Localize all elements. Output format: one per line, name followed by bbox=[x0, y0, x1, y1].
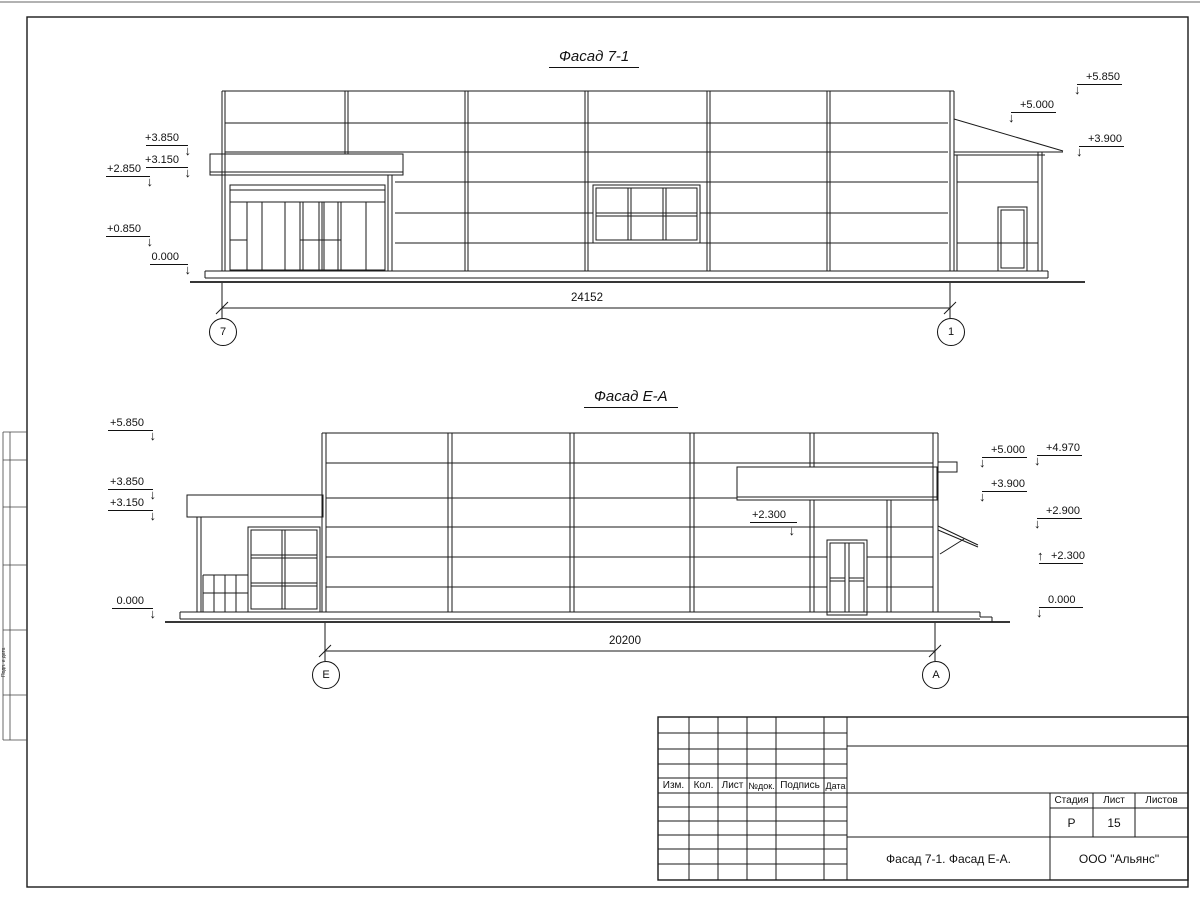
down-arrow-icon bbox=[185, 263, 192, 277]
down-arrow-icon bbox=[1074, 83, 1081, 97]
down-arrow-icon bbox=[150, 429, 157, 443]
down-arrow-icon bbox=[185, 166, 192, 180]
titleblock-col-data: Дата bbox=[824, 778, 847, 793]
elevation-mark: +2.900 bbox=[1037, 503, 1082, 519]
facade1-dimension-label: 24152 bbox=[547, 292, 627, 304]
titleblock-col-kol: Кол. bbox=[689, 778, 718, 793]
elevation-mark: 0.000 bbox=[1039, 592, 1083, 608]
down-arrow-icon bbox=[1034, 517, 1041, 531]
elevation-mark: 0.000 bbox=[112, 593, 153, 609]
down-arrow-icon bbox=[1034, 454, 1041, 468]
elevation-mark: +2.850 bbox=[106, 161, 150, 177]
titleblock-sheet-value: 15 bbox=[1093, 808, 1135, 837]
titleblock-sheets-label: Листов bbox=[1135, 793, 1188, 808]
elevation-mark: +2.300 bbox=[750, 507, 797, 523]
titleblock-doc-title: Фасад 7-1. Фасад Е-А. bbox=[847, 837, 1050, 880]
up-arrow-icon bbox=[1037, 549, 1044, 563]
down-arrow-icon bbox=[147, 175, 154, 189]
down-arrow-icon bbox=[979, 456, 986, 470]
elevation-mark: 0.000 bbox=[150, 249, 188, 265]
titleblock-col-izm: Изм. bbox=[658, 778, 689, 793]
down-arrow-icon bbox=[789, 524, 796, 538]
titleblock-sheet-label: Лист bbox=[1093, 793, 1135, 808]
axis-circle-7: 7 bbox=[209, 318, 237, 346]
elevation-mark: +3.150 bbox=[146, 152, 188, 168]
down-arrow-icon bbox=[1008, 111, 1015, 125]
titleblock-stage-label: Стадия bbox=[1050, 793, 1093, 808]
elevation-mark: +4.970 bbox=[1037, 440, 1082, 456]
titleblock-col-ndok: №док. bbox=[747, 778, 776, 793]
facade2-dimension-label: 20200 bbox=[585, 635, 665, 647]
side-strip-label: Подп. и дата bbox=[1, 630, 11, 695]
elevation-mark: +5.850 bbox=[108, 415, 153, 431]
elevation-mark: +0.850 bbox=[106, 221, 150, 237]
elevation-mark: +3.850 bbox=[146, 130, 188, 146]
elevation-mark: +3.150 bbox=[108, 495, 153, 511]
titleblock-stage-value: Р bbox=[1050, 808, 1093, 837]
elevation-mark: +5.000 bbox=[1011, 97, 1056, 113]
facade2-linework bbox=[165, 433, 1010, 661]
down-arrow-icon bbox=[1076, 145, 1083, 159]
axis-circle-1: 1 bbox=[937, 318, 965, 346]
elevation-mark: +3.900 bbox=[1079, 131, 1124, 147]
elevation-mark: +5.000 bbox=[982, 442, 1027, 458]
axis-circle-a: А bbox=[922, 661, 950, 689]
facade1-linework bbox=[190, 91, 1085, 318]
elevation-mark: +2.300 bbox=[1039, 548, 1083, 564]
elevation-mark: +3.850 bbox=[108, 474, 153, 490]
titleblock-company: ООО "Альянс" bbox=[1050, 837, 1188, 880]
down-arrow-icon bbox=[150, 607, 157, 621]
titleblock-col-podpis: Подпись bbox=[776, 778, 824, 793]
elevation-mark: +3.900 bbox=[982, 476, 1027, 492]
down-arrow-icon bbox=[1036, 606, 1043, 620]
axis-circle-e: Е bbox=[312, 661, 340, 689]
facade2-title: Фасад Е-А bbox=[584, 388, 678, 408]
drawing-sheet: Фасад 7-1 Фасад Е-А 24152 20200 7 1 Е А … bbox=[0, 0, 1200, 900]
titleblock-col-list: Лист bbox=[718, 778, 747, 793]
down-arrow-icon bbox=[150, 509, 157, 523]
titleblock-sheets-value bbox=[1135, 808, 1188, 837]
down-arrow-icon bbox=[979, 490, 986, 504]
elevation-mark: +5.850 bbox=[1077, 69, 1122, 85]
down-arrow-icon bbox=[147, 235, 154, 249]
facade1-title: Фасад 7-1 bbox=[549, 48, 639, 68]
